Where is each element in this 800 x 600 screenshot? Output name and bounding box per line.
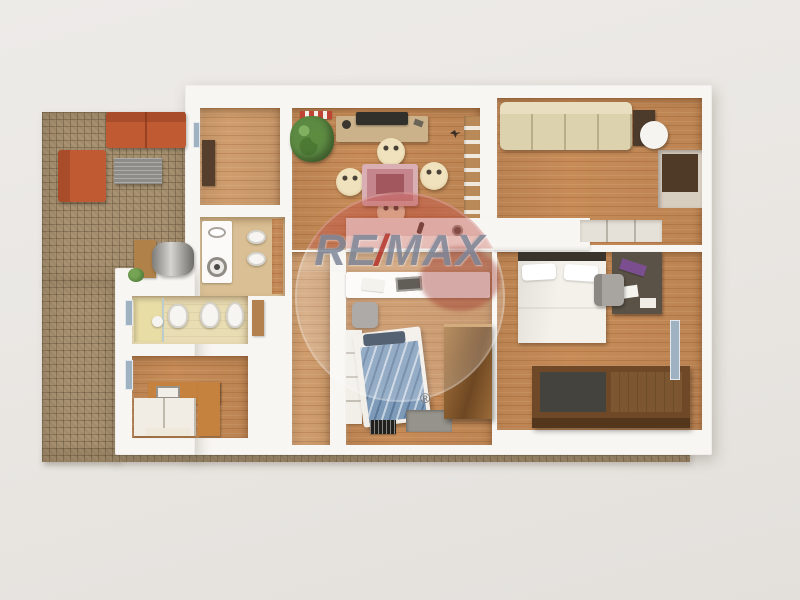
counter-wall [346,218,590,250]
faucet-icon [416,222,424,235]
kitchen-window [125,360,133,390]
toilet-second [200,302,220,328]
bedroom-window [670,320,680,380]
desk-chair-right [594,274,624,306]
washer-door [214,264,220,270]
double-bed-white [518,261,606,343]
pillow-left [522,263,557,281]
room-corridor [292,252,330,445]
bidet-main [247,252,266,266]
wash-basin [168,304,188,328]
dining-chair-left [336,168,364,196]
kitchen-counter-side [198,382,220,436]
desk-chair-small [352,302,378,328]
barbecue-grill [152,242,194,276]
doormat [370,420,396,434]
counter-knob [452,225,463,236]
washing-machine [207,257,227,277]
toilet-main [247,230,266,244]
table-glass-center [376,174,404,194]
desk-small [346,272,490,298]
platform-bed [532,366,690,428]
dining-chair-right [420,162,448,190]
notebook [640,298,656,308]
platform-mattress-dark [540,372,606,412]
desk-papers [361,278,384,292]
bathroom2-window [125,300,133,326]
round-side-table [640,121,668,149]
floorplan-render: RE/MAX ® [0,0,800,600]
bathroom-door [252,300,264,336]
closet-dark-panel [662,154,698,192]
potted-plant [290,116,334,162]
hall-window [193,122,200,148]
outdoor-armchair [58,150,106,202]
bidet-second [226,302,244,328]
terrace-plant [128,268,144,282]
sink-icon [208,227,226,238]
bathroom-wood-wall [272,219,283,294]
bathroom-vanity [202,221,232,283]
dining-chair-top [377,138,405,166]
floor-lamp [152,316,163,327]
wardrobe [444,324,492,419]
kitchen-mat [146,428,190,436]
closet-recess [658,150,702,208]
outdoor-table [114,158,162,184]
dresser [580,220,662,242]
speaker-icon [342,120,351,129]
sofa-bed-cream [500,102,632,150]
bed-headboard [518,252,606,261]
tv-screen [356,112,408,125]
laptop-small [396,276,423,292]
terrace-side [42,280,120,462]
laptop-purple [619,258,647,276]
hall-cabinet [202,140,215,186]
dining-table [362,164,418,206]
outdoor-sofa [106,112,186,148]
